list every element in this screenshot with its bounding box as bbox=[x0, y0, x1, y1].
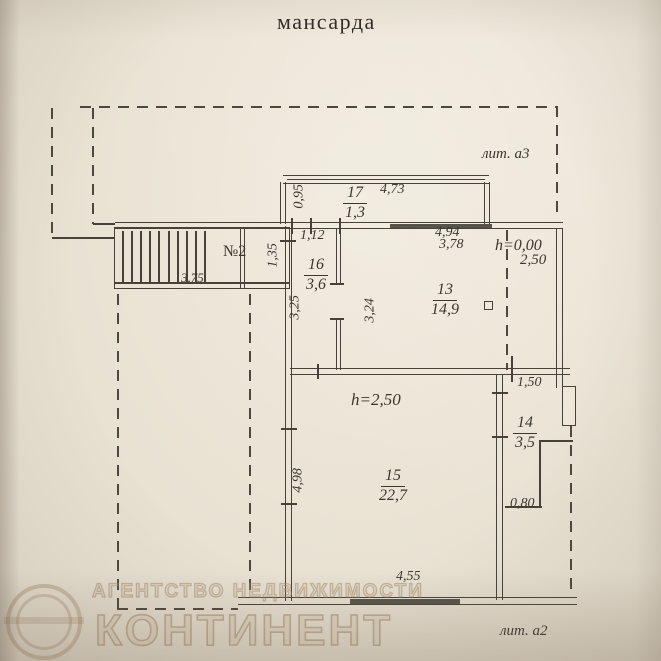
stair-tread bbox=[140, 231, 142, 283]
dim-room13-depth: 3,24 bbox=[364, 290, 379, 330]
dim-tick bbox=[281, 503, 297, 505]
watermark-agency-line: АГЕНТСТВО НЕДВИЖИМОСТИ bbox=[92, 581, 424, 603]
stair-tread bbox=[177, 231, 179, 283]
roof-outline-left-inner bbox=[92, 108, 94, 224]
room16-label: 16 3,6 bbox=[301, 256, 331, 294]
dim-tick bbox=[492, 392, 508, 394]
door-tick bbox=[330, 283, 344, 285]
room14-label: 14 3,5 bbox=[510, 414, 540, 452]
door-tick bbox=[330, 318, 344, 320]
room14-bottom-wall bbox=[540, 440, 573, 442]
room14-number: 14 bbox=[513, 414, 537, 434]
dim-stair-length: 3,75 bbox=[181, 271, 204, 285]
room17-number: 17 bbox=[343, 184, 367, 204]
room17-label: 17 1,3 bbox=[340, 184, 370, 222]
room13-area: 14,9 bbox=[428, 301, 462, 319]
roof-outline-left-connector bbox=[52, 237, 115, 239]
height-value-room13: 2,50 bbox=[520, 253, 546, 269]
stair-tread bbox=[122, 231, 124, 283]
page-title: мансарда bbox=[277, 9, 376, 35]
room16-number: 16 bbox=[304, 256, 328, 276]
room13-label: 13 14,9 bbox=[428, 281, 462, 319]
dim-room14-niche: 0,80 bbox=[510, 497, 535, 512]
stair-tread bbox=[204, 231, 206, 283]
wall-right-upper bbox=[556, 228, 563, 388]
floor-plan-scan: мансарда лит. а3 лит. а2 bbox=[0, 0, 661, 661]
dim-balcony-depth: 0,95 bbox=[293, 176, 308, 216]
wall-mid-horizontal bbox=[290, 368, 570, 375]
staircase-number: №2 bbox=[223, 244, 246, 261]
watermark-logo-band bbox=[4, 617, 84, 624]
balcony-left-wall bbox=[280, 182, 286, 224]
stair-corner-connector bbox=[93, 223, 115, 225]
dim-tick bbox=[280, 240, 296, 242]
wall-16-13-upper bbox=[336, 229, 341, 285]
room15-area: 22,7 bbox=[374, 487, 412, 505]
dim-tick bbox=[492, 436, 508, 438]
room14-area: 3,5 bbox=[510, 434, 540, 452]
dim-tick bbox=[317, 364, 319, 379]
flue-square-symbol bbox=[484, 301, 493, 310]
room15-number: 15 bbox=[381, 467, 405, 487]
balcony-right-wall bbox=[484, 182, 490, 224]
stair-tread bbox=[131, 231, 133, 283]
dim-room16-depth: 3,25 bbox=[289, 287, 304, 327]
dim-balcony-width: 4,73 bbox=[380, 183, 405, 198]
stair-tread bbox=[149, 231, 151, 283]
dim-room13-width-inner: 3,78 bbox=[439, 238, 464, 253]
litera-a3-label: лит. а3 bbox=[482, 147, 530, 163]
roof-outline-lower-left-2 bbox=[249, 294, 251, 598]
wall-15-14 bbox=[496, 374, 503, 600]
roof-outline-top bbox=[80, 106, 558, 108]
stair-tread bbox=[168, 231, 170, 283]
roof-outline-right-lower bbox=[570, 426, 572, 595]
stair-tread bbox=[158, 231, 160, 283]
window-symbol bbox=[562, 386, 576, 426]
dim-room15-depth: 4,98 bbox=[292, 460, 307, 500]
room17-area: 1,3 bbox=[340, 204, 370, 222]
dim-tick bbox=[281, 428, 297, 430]
room15-label: 15 22,7 bbox=[374, 467, 412, 505]
wall-16-13-lower bbox=[336, 320, 341, 370]
watermark-brand-line: КОНТИНЕНТ bbox=[95, 606, 393, 656]
room13-number: 13 bbox=[433, 281, 457, 301]
room16-area: 3,6 bbox=[301, 276, 331, 294]
dim-room16-width: 1,12 bbox=[300, 229, 325, 244]
dim-room14-width: 1,50 bbox=[517, 376, 542, 391]
roof-outline-lower-left-1 bbox=[117, 294, 119, 608]
balcony-window-band-inner-line bbox=[287, 179, 485, 180]
roof-outline-left-outer bbox=[51, 108, 53, 238]
roof-outline-right bbox=[556, 106, 558, 218]
dim-landing-width: 1,35 bbox=[267, 235, 282, 275]
dim-tick bbox=[511, 356, 513, 382]
dim-tick bbox=[291, 218, 293, 234]
litera-a2-label: лит. а2 bbox=[500, 624, 548, 640]
height-mark-room15: h=2,50 bbox=[351, 391, 401, 409]
